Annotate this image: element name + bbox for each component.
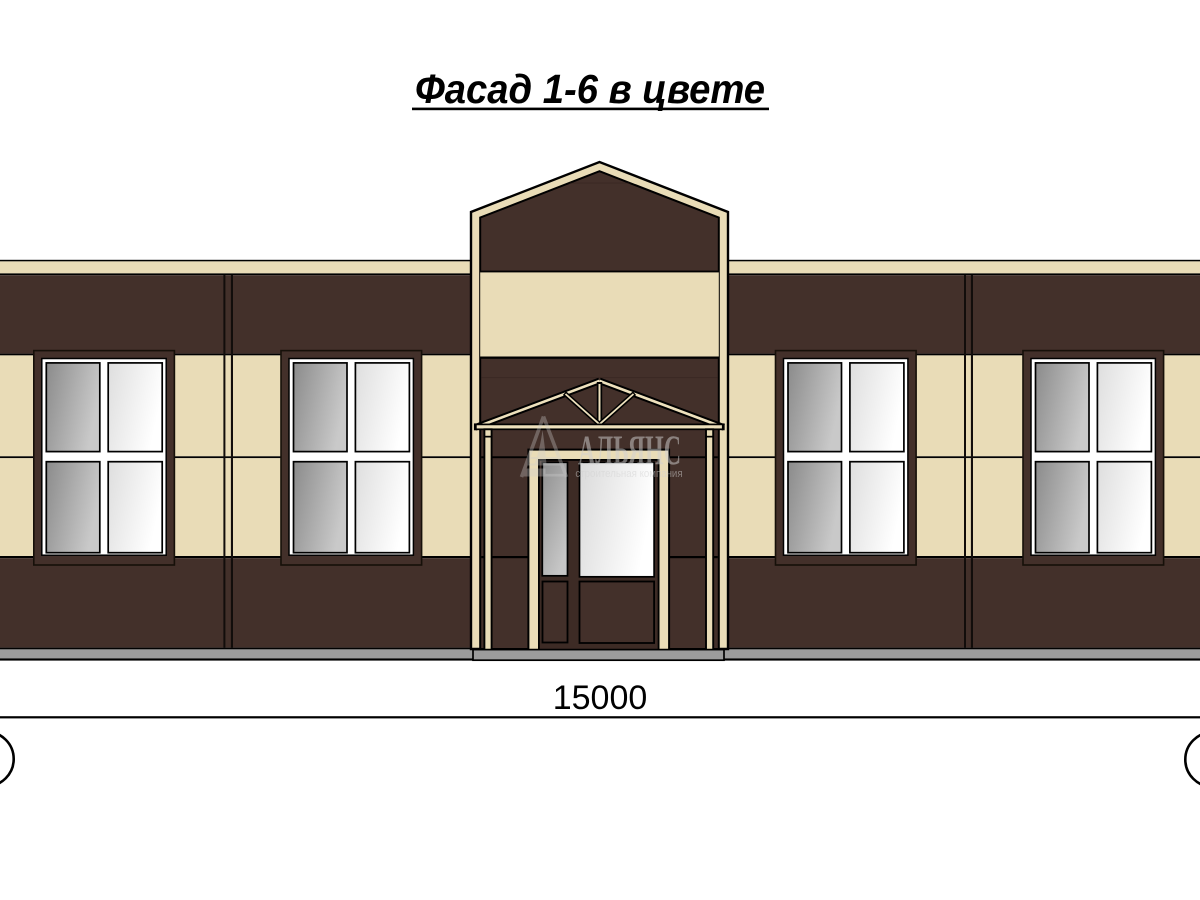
svg-text:Фасад 1-6 в цвете: Фасад 1-6 в цвете — [415, 67, 765, 113]
svg-text:строительная компания: строительная компания — [575, 468, 682, 480]
svg-text:15000: 15000 — [553, 679, 648, 717]
